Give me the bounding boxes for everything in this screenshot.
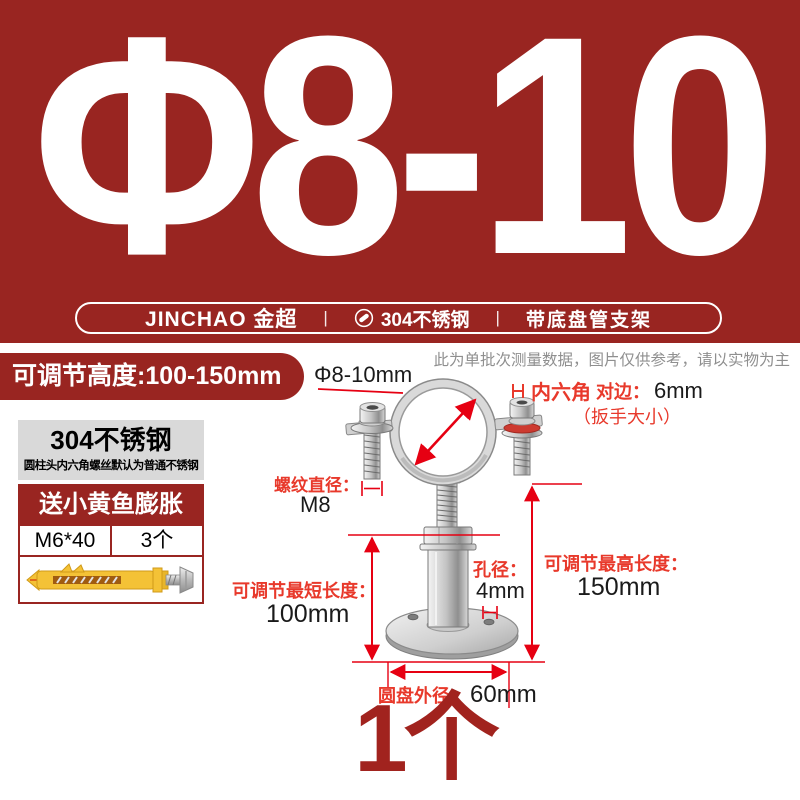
screw-icon: [354, 308, 374, 328]
min-length-value: 100mm: [266, 600, 349, 629]
brand-banner: JINCHAO 金超 | 304不锈钢 | 带底盘管支架: [75, 302, 722, 334]
anchor-drawing: [25, 558, 197, 602]
left-bolt-drawing: [351, 403, 393, 480]
threaded-rod-drawing: [437, 481, 457, 527]
material-title: 304不锈钢: [18, 425, 204, 455]
thread-diameter-value: M8: [300, 492, 331, 518]
gift-spec: M6*40: [20, 526, 110, 555]
right-bolt-drawing: [502, 398, 542, 476]
max-length-value: 150mm: [577, 573, 660, 602]
cylinder-drawing: [420, 544, 476, 627]
hex-label: 内六角: [531, 376, 591, 405]
hole-diameter-value: 4mm: [476, 578, 525, 604]
gift-qty: 3个: [110, 526, 202, 555]
banner-product-type: 带底盘管支架: [526, 305, 652, 332]
pipe-diameter-annotation: Φ8-10mm: [314, 362, 412, 388]
brand-logo-text: JINCHAO 金超: [145, 303, 297, 333]
hex-side-label: 对边：: [596, 378, 650, 404]
hero-section: Φ8-10 JINCHAO 金超 | 304不锈钢 | 带底盘管支架: [0, 0, 800, 343]
product-infographic: Φ8-10 JINCHAO 金超 | 304不锈钢 | 带底盘管支架 可调节高度…: [0, 0, 800, 800]
yellow-anchor-image: [20, 557, 202, 602]
material-card: 304不锈钢 圆柱头内六角螺丝默认为普通不锈钢: [18, 420, 204, 480]
hero-size-title: Φ8-10: [0, 0, 800, 313]
width-marker-icon: [511, 381, 525, 401]
gift-spec-row: M6*40 3个: [20, 524, 202, 557]
quantity-label: 1个: [330, 686, 520, 792]
product-diagram: [290, 365, 600, 710]
info-card: 304不锈钢 圆柱头内六角螺丝默认为普通不锈钢 送小黄鱼膨胀 M6*40 3个: [18, 420, 204, 604]
banner-material-label: 304不锈钢: [381, 305, 470, 332]
adjustable-height-badge: 可调节高度:100-150mm: [0, 353, 304, 400]
wrench-size-note: （扳手大小）: [573, 403, 681, 429]
gift-table: 送小黄鱼膨胀 M6*40 3个: [18, 484, 204, 604]
hex-value: 6mm: [654, 378, 703, 404]
banner-divider: |: [496, 308, 500, 328]
material-note: 圆柱头内六角螺丝默认为普通不锈钢: [18, 457, 204, 473]
hex-socket-annotation: 内六角 对边： 6mm: [511, 376, 703, 405]
banner-divider: |: [323, 308, 327, 328]
gift-title: 送小黄鱼膨胀: [20, 486, 202, 524]
